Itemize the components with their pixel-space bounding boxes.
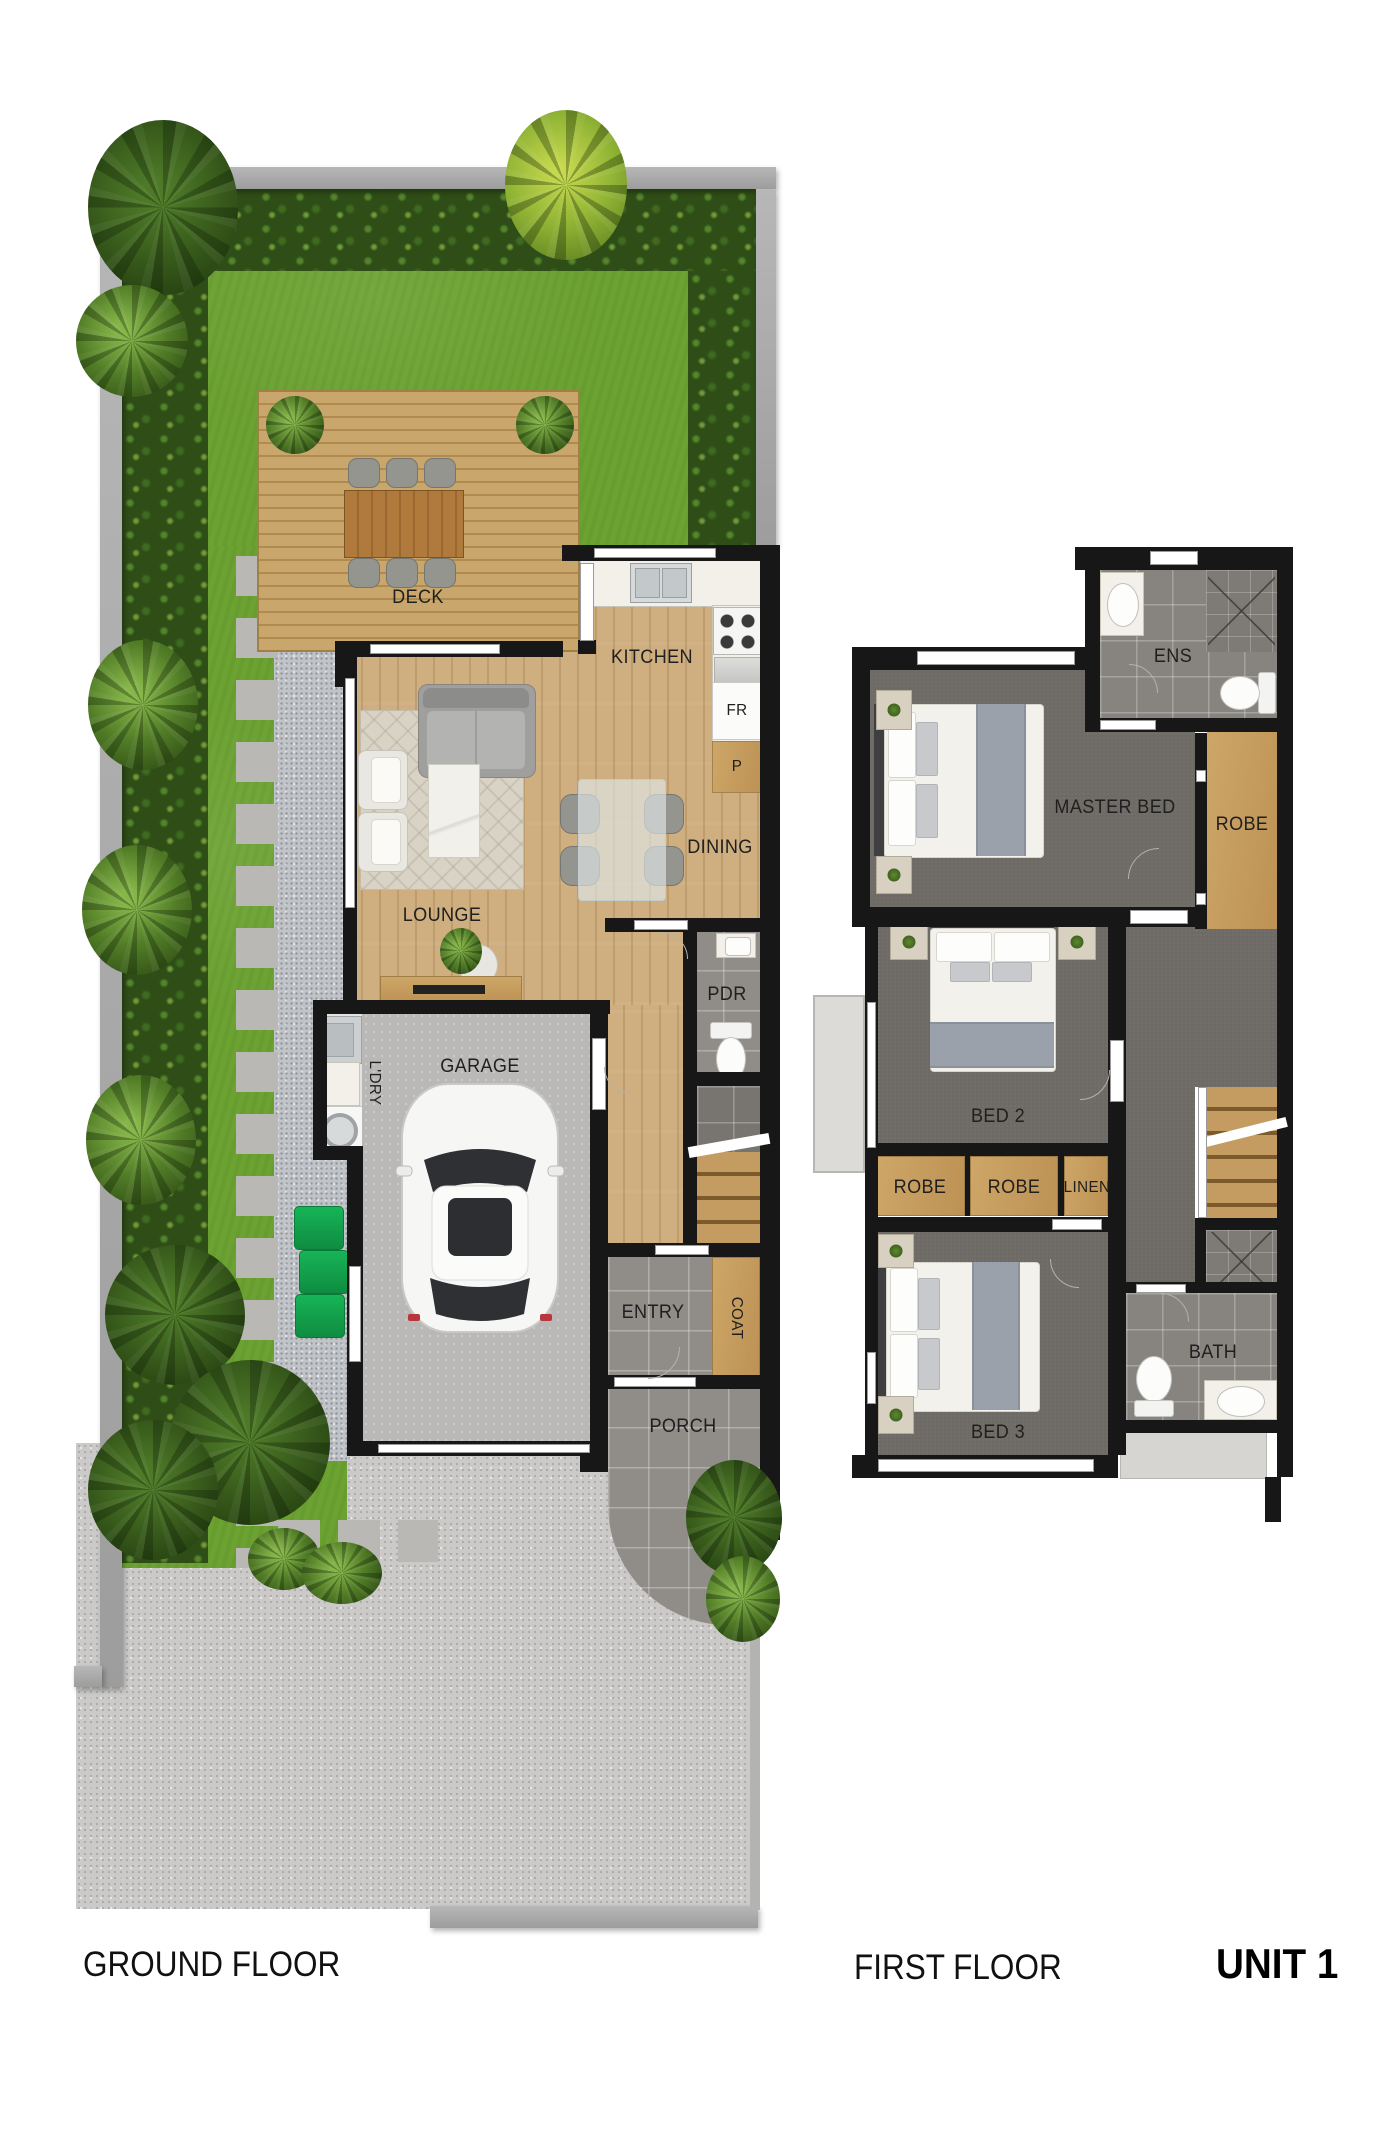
stairs-first <box>1207 1087 1277 1218</box>
bed2-door <box>1110 1040 1124 1102</box>
deck-chair <box>348 558 380 588</box>
label-garage: GARAGE <box>440 1056 520 1078</box>
label-laundry: L'DRY <box>365 1060 383 1105</box>
armchair <box>358 750 408 810</box>
balcony-awning-bottom <box>1120 1427 1267 1479</box>
wall <box>1277 547 1293 1477</box>
accent-pillow <box>992 962 1032 982</box>
label-robe-b: ROBE <box>988 1177 1041 1199</box>
wall <box>865 1143 1124 1156</box>
shower-mark <box>1208 572 1275 650</box>
wall <box>965 1156 970 1216</box>
bath-basin <box>1217 1386 1265 1417</box>
bedside-table <box>890 924 928 960</box>
wheelie-bin <box>295 1294 345 1338</box>
tub-basin <box>326 1023 354 1057</box>
bed-throw <box>930 1022 1054 1068</box>
ensuite-door <box>1100 720 1156 730</box>
label-master-robe: ROBE <box>1216 814 1269 836</box>
bed-throw <box>972 1262 1020 1410</box>
label-bed2: BED 2 <box>971 1106 1025 1128</box>
wall <box>313 1000 610 1014</box>
bed-throw <box>976 704 1026 856</box>
palm-left <box>82 845 192 975</box>
label-fridge: FR <box>726 702 747 720</box>
deck-plant-left <box>266 396 324 454</box>
master-window <box>917 651 1075 665</box>
garage-door <box>378 1444 590 1453</box>
accent-pillow <box>916 722 938 776</box>
front-door <box>614 1377 696 1387</box>
label-lounge: LOUNGE <box>403 905 482 927</box>
ensuite-shower <box>1206 570 1277 652</box>
bedside-table <box>876 690 912 730</box>
caption-ground-floor: GROUND FLOOR <box>83 1945 340 1985</box>
kitchen-sink <box>630 563 692 603</box>
bedside-table <box>878 1234 914 1268</box>
deck-chair <box>348 458 380 488</box>
palm-bottom <box>302 1542 382 1604</box>
unit-title: UNIT 1 <box>1216 1940 1338 1988</box>
bed3-window <box>867 1352 876 1404</box>
bedside-table <box>878 1396 914 1434</box>
wall <box>852 647 870 920</box>
label-ensuite: ENS <box>1154 646 1192 668</box>
bath-toilet-bowl <box>1136 1356 1172 1402</box>
wall <box>313 1003 327 1155</box>
palm-left <box>86 1075 196 1205</box>
hall-wood-floor <box>605 1005 683 1253</box>
stair-rail <box>1198 1087 1207 1218</box>
wall <box>1085 570 1100 718</box>
entry-hall-door <box>655 1245 709 1255</box>
bath-toilet-tank <box>1134 1400 1174 1417</box>
wall <box>1195 1218 1293 1230</box>
stair-landing-floor <box>1195 925 1279 1087</box>
dining-table <box>578 779 666 901</box>
car <box>396 1080 564 1336</box>
tree-top-right <box>505 110 627 260</box>
balcony-awning-left <box>813 995 865 1173</box>
label-deck: DECK <box>392 587 444 609</box>
lounge-deck-window <box>370 644 500 654</box>
label-powder: PDR <box>707 984 746 1006</box>
pillow <box>936 932 992 962</box>
fence-left-return <box>74 1666 102 1687</box>
porch-plant <box>706 1556 780 1642</box>
label-kitchen: KITCHEN <box>611 647 693 669</box>
ensuite-vanity <box>1100 572 1144 636</box>
fence-right <box>756 190 776 546</box>
master-door <box>1130 910 1188 924</box>
floorplan-canvas: DECK KITCHEN FR P DINING LOUNGE GARAGE L… <box>0 0 1400 2134</box>
ensuite-toilet-bowl <box>1220 676 1260 710</box>
fence-kerb-bottom <box>430 1906 758 1928</box>
label-linen: LINEN <box>1064 1179 1111 1197</box>
accent-pillow <box>918 1278 940 1330</box>
sink-basin-right <box>662 568 687 598</box>
wall <box>1126 1420 1293 1433</box>
label-entry: ENTRY <box>622 1302 685 1324</box>
palm-left <box>76 285 188 397</box>
label-pantry: P <box>732 758 743 776</box>
coffee-table <box>428 764 480 858</box>
hedge-right <box>688 271 756 546</box>
tv <box>413 985 485 994</box>
outdoor-table <box>344 490 464 558</box>
wheelie-bin <box>294 1206 344 1250</box>
caption-first-floor: FIRST FLOOR <box>854 1948 1062 1988</box>
sofa-cushions <box>427 711 525 769</box>
bedside-table <box>876 856 912 894</box>
tree-top-left <box>88 120 238 295</box>
bush-bottom-left <box>88 1420 218 1560</box>
label-dining: DINING <box>687 837 752 859</box>
kitchen-window <box>594 548 716 558</box>
label-coat: COAT <box>727 1297 745 1340</box>
stairs-ground <box>697 1152 760 1250</box>
robe-jamb <box>1196 770 1206 782</box>
label-master: MASTER BED <box>1054 797 1175 819</box>
deck-kitchen-door <box>580 563 594 641</box>
pillow <box>890 1268 918 1332</box>
wall <box>760 545 780 1540</box>
accent-pillow <box>916 784 938 838</box>
bath-vanity <box>1204 1380 1277 1420</box>
garage-side-door <box>349 1266 361 1362</box>
bench-stainless <box>714 657 762 685</box>
bed3-door <box>1052 1219 1102 1230</box>
wall <box>1265 1477 1281 1522</box>
pillow <box>888 780 916 846</box>
cooktop <box>713 607 761 655</box>
wall <box>683 1086 697 1252</box>
wall <box>683 1072 780 1086</box>
label-robe-a: ROBE <box>894 1177 947 1199</box>
ensuite-window <box>1150 551 1198 565</box>
lounge-side-window <box>345 678 355 908</box>
garage-internal-door <box>592 1038 606 1110</box>
powder-door <box>634 920 688 930</box>
accent-pillow <box>918 1338 940 1390</box>
powder-basin <box>725 937 751 956</box>
deck-chair <box>424 558 456 588</box>
pillow <box>994 932 1050 962</box>
label-bath: BATH <box>1189 1342 1237 1364</box>
deck-chair <box>386 458 418 488</box>
wall <box>1108 927 1126 1455</box>
powder-vanity <box>716 933 756 958</box>
ensuite-basin <box>1107 583 1139 627</box>
sofa-back <box>423 688 529 708</box>
sink-basin-left <box>635 568 660 598</box>
ensuite-toilet-tank <box>1258 672 1276 714</box>
plant-leaves <box>440 928 482 974</box>
bed2-window <box>867 1002 876 1148</box>
bed3-bottom-window <box>878 1459 1094 1472</box>
armchair <box>358 812 408 872</box>
deck-plant-right <box>516 396 574 454</box>
bedside-table <box>1058 924 1096 960</box>
wall <box>578 640 596 654</box>
palm-left <box>88 640 198 770</box>
bath-door <box>1136 1284 1186 1293</box>
deck-chair <box>386 558 418 588</box>
label-bed3: BED 3 <box>971 1422 1025 1444</box>
robe-jamb <box>1196 893 1206 905</box>
pillow <box>890 1334 918 1398</box>
accent-pillow <box>950 962 990 982</box>
label-porch: PORCH <box>649 1416 716 1438</box>
deck-chair <box>424 458 456 488</box>
wheelie-bin <box>299 1250 349 1294</box>
